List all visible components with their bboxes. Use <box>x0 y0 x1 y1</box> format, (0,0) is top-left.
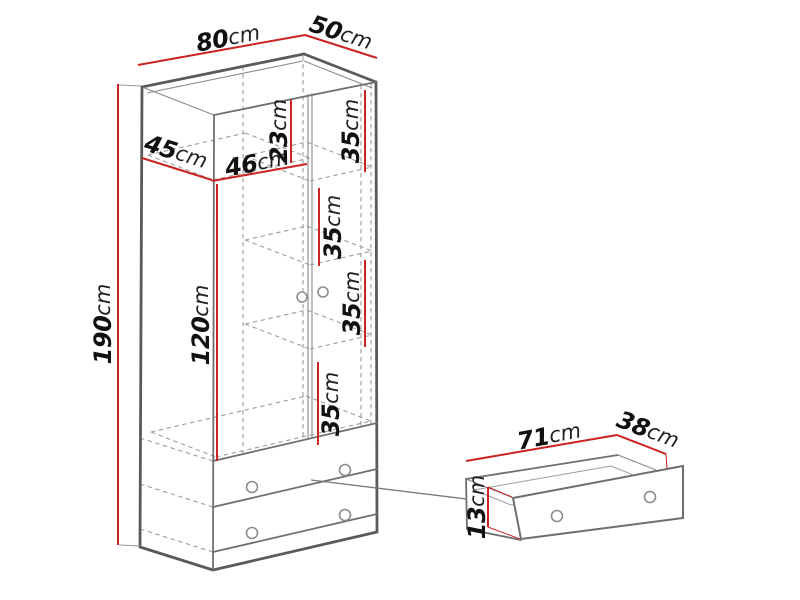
dimension-diagram: 80cm50cm190cm45cm46cm23cm35cm35cm35cm35c… <box>0 0 800 600</box>
dim-label-shelf-35-a: 35cm <box>337 99 365 163</box>
dim-tick-height-190 <box>119 545 140 546</box>
dim-label-drawer-width-71: 71cm <box>515 416 583 455</box>
dim-label-shelf-35-c: 35cm <box>338 271 366 335</box>
diagram-page: 80cm50cm190cm45cm46cm23cm35cm35cm35cm35c… <box>0 0 800 600</box>
drawer1-left-knob <box>247 482 258 493</box>
dim-label-top-gap-23: 23cm <box>265 99 293 163</box>
dimension-depth-50: 50cm <box>305 10 377 58</box>
dim-label-shelf-35-b: 35cm <box>319 195 347 259</box>
drawer-detail-drawing <box>466 455 683 540</box>
drawer2-right-knob <box>340 510 351 521</box>
right-door-knob <box>318 287 328 297</box>
drawer2-left-knob <box>247 528 258 539</box>
dim-label-width-80: 80cm <box>194 18 262 57</box>
detail-drawer-right-knob <box>645 492 656 503</box>
dimension-top-gap-23: 23cm <box>265 99 293 163</box>
dimension-shelf-35-d: 35cm <box>317 362 345 445</box>
dimension-shelf-35-b: 35cm <box>319 188 347 266</box>
dim-label-hanging-120: 120cm <box>187 285 215 366</box>
dimension-shelf-35-a: 35cm <box>337 90 365 172</box>
dim-tick-drawer-depth-38 <box>666 454 667 469</box>
dim-label-drawer-height-13: 13cm <box>463 475 491 539</box>
drawer1-right-knob <box>340 465 351 476</box>
left-door-knob <box>297 292 307 302</box>
dimension-drawer-width-71: 71cm <box>466 416 617 461</box>
dim-label-shelf-35-d: 35cm <box>317 372 345 436</box>
dim-tick-height-190 <box>119 85 141 86</box>
detail-drawer-left-knob <box>552 511 563 522</box>
dimension-shelf-35-c: 35cm <box>338 260 366 347</box>
dim-label-depth-50: 50cm <box>306 10 376 57</box>
dim-label-height-190: 190cm <box>89 284 117 365</box>
dimension-height-190: 190cm <box>89 84 141 546</box>
